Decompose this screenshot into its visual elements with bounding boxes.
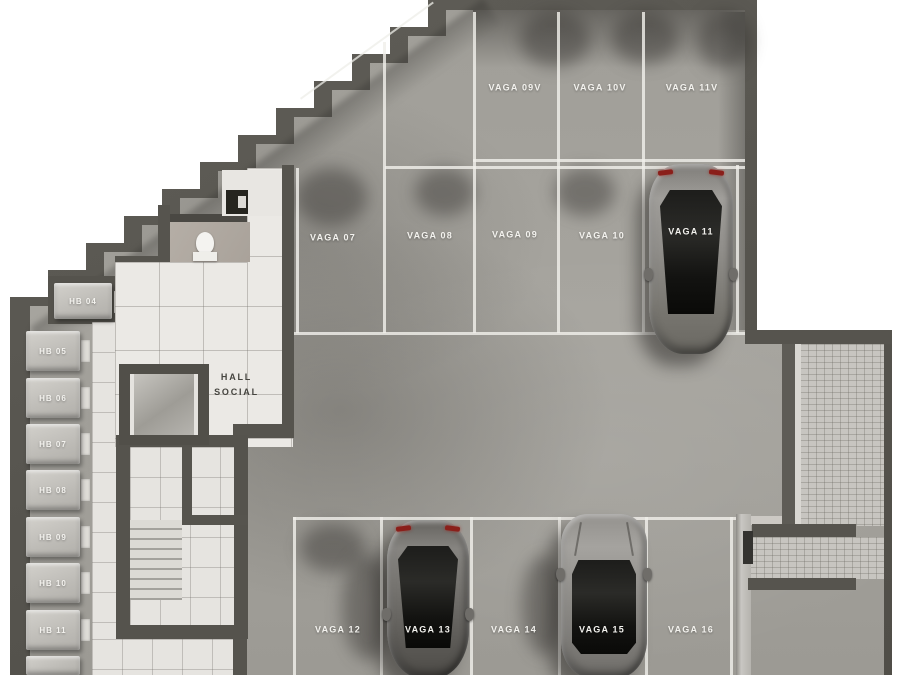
wall-edge-highlight	[794, 344, 801, 530]
storage-unit-hb06: HB 06	[26, 378, 80, 418]
parking-line	[380, 517, 383, 675]
parking-line	[296, 168, 299, 333]
door-threshold	[81, 526, 90, 548]
door-block	[743, 531, 753, 564]
parking-space-label: VAGA 16	[668, 625, 714, 636]
car-mirror	[556, 568, 565, 581]
shadow	[473, 10, 745, 68]
wall	[752, 524, 856, 537]
parking-line	[642, 12, 645, 333]
shadow	[415, 168, 475, 216]
storage-unit-label: HB 04	[69, 296, 97, 307]
storage-unit-label: HB 11	[39, 625, 66, 636]
car-glass	[660, 190, 722, 314]
parking-line	[730, 517, 733, 675]
storage-unit-hb10: HB 10	[26, 563, 80, 603]
storage-unit-hb07: HB 07	[26, 424, 80, 464]
parking-line	[557, 12, 560, 333]
storage-unit-hb05: HB 05	[26, 331, 80, 371]
car-vaga-13	[387, 520, 469, 675]
parking-space-label: VAGA 09	[492, 230, 538, 241]
car-mirror	[643, 568, 652, 581]
floor-plan: HB 04 HB 05 HB 06 HB 07 HB 08 HB 09 HB 1…	[0, 0, 900, 675]
storage-unit-label: HB 05	[39, 346, 67, 357]
wall	[745, 330, 892, 344]
storage-unit-label: HB 06	[39, 393, 67, 404]
wall	[748, 578, 856, 590]
storage-unit-label: HB 08	[39, 485, 67, 496]
car-vaga-11	[649, 164, 733, 354]
parking-space-label: VAGA 12	[315, 625, 361, 636]
parking-line	[473, 159, 745, 162]
parking-space-label: VAGA 07	[310, 233, 356, 244]
toilet-tank	[193, 252, 217, 261]
shadow	[295, 168, 367, 226]
parking-space-label: VAGA 14	[491, 625, 537, 636]
parking-line	[736, 165, 739, 333]
storage-unit-label: HB 07	[39, 439, 67, 450]
stairs	[130, 520, 182, 600]
door-threshold	[81, 572, 90, 594]
corridor	[92, 639, 233, 675]
door-threshold	[81, 479, 90, 501]
paved-area	[748, 537, 884, 579]
car-mirror	[729, 268, 738, 281]
parking-line	[473, 12, 476, 333]
hall-label-line1: HALL	[166, 370, 307, 385]
paved-area	[800, 344, 884, 526]
parking-line	[293, 517, 743, 520]
car-mirror	[465, 608, 474, 621]
storage-unit-label: HB 09	[39, 532, 67, 543]
shadow	[555, 168, 615, 216]
parking-space-label: VAGA 08	[407, 231, 453, 242]
parking-space-label: VAGA 11	[668, 227, 713, 238]
hall-social-label: HALL SOCIAL	[166, 370, 307, 400]
wall	[233, 639, 247, 675]
car-glass	[572, 560, 636, 654]
wall	[182, 447, 192, 523]
parking-line	[383, 42, 386, 333]
storage-unit-hb08: HB 08	[26, 470, 80, 510]
parking-space-label: VAGA 15	[579, 625, 625, 636]
car-vaga-15	[561, 514, 647, 675]
parking-space-label: VAGA 10	[579, 231, 625, 242]
wall	[182, 515, 248, 525]
door-threshold	[81, 387, 90, 409]
storage-unit-label: HB 10	[39, 578, 67, 589]
elevator-door-track	[130, 374, 134, 435]
car-mirror	[382, 608, 391, 621]
toilet-bowl	[196, 232, 214, 254]
parking-space-label: VAGA 10V	[573, 83, 626, 94]
storage-unit-partial	[26, 656, 80, 675]
parking-space-label: VAGA 09V	[488, 83, 541, 94]
door-threshold	[81, 340, 90, 362]
storage-unit-hb11: HB 11	[26, 610, 80, 650]
door-threshold	[81, 619, 90, 641]
wall	[782, 344, 795, 534]
parking-space-label: VAGA 13	[405, 625, 451, 636]
car-mirror	[644, 268, 653, 281]
door-threshold	[81, 433, 90, 455]
washbasin-bowl	[238, 196, 246, 208]
parking-line	[470, 517, 473, 675]
storage-unit-hb09: HB 09	[26, 517, 80, 557]
parking-space-label: VAGA 11V	[666, 83, 719, 94]
parking-line	[293, 517, 296, 675]
storage-unit-hb04: HB 04	[54, 283, 112, 319]
hall-label-line2: SOCIAL	[166, 385, 307, 400]
